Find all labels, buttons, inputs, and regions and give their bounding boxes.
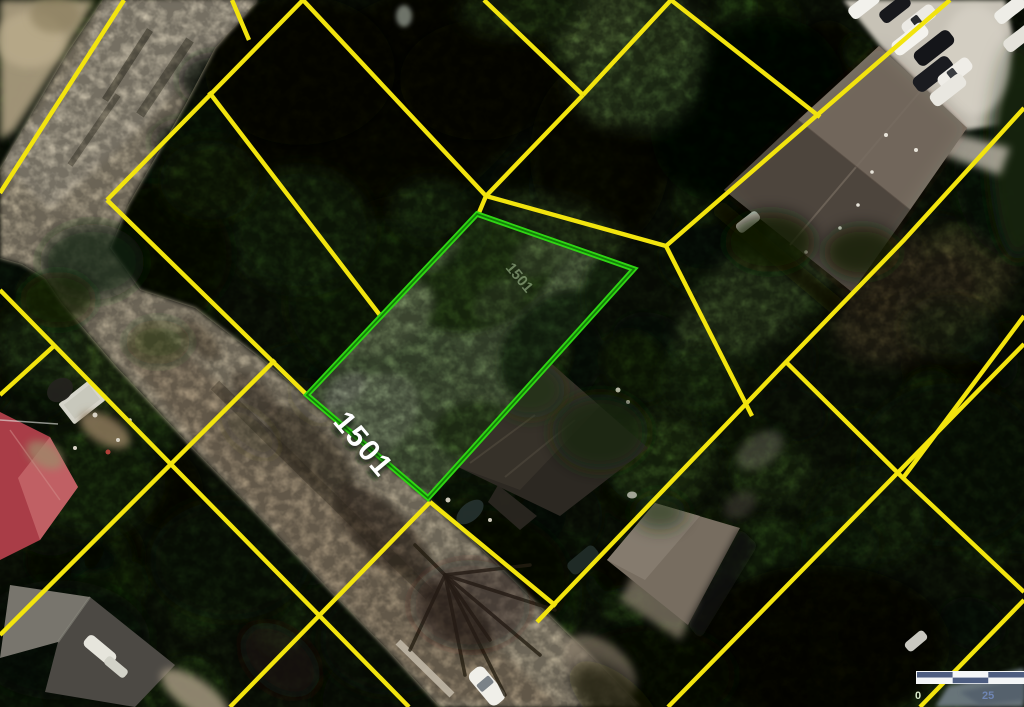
svg-text:0: 0 bbox=[915, 690, 921, 702]
svg-text:25: 25 bbox=[982, 690, 994, 702]
